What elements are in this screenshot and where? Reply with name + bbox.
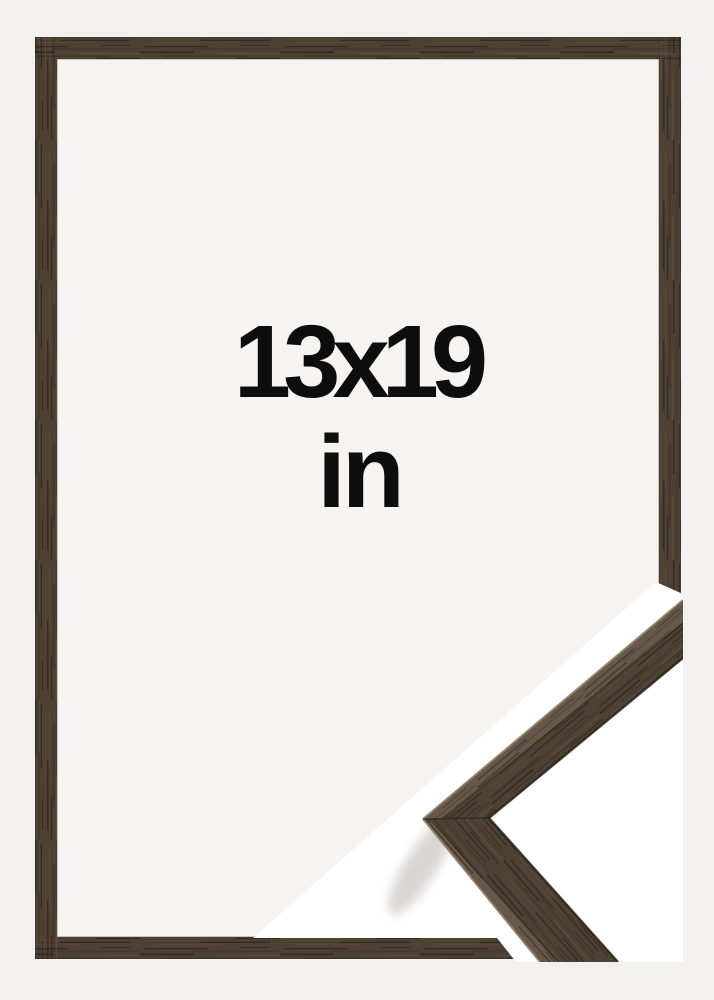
product-image-frame-13x19: 13x19 in bbox=[0, 0, 714, 1000]
frame-left-grain bbox=[35, 37, 57, 959]
frame-top-grain bbox=[35, 37, 681, 59]
size-label-dimensions: 13x19 bbox=[234, 304, 485, 419]
size-label-unit: in bbox=[317, 414, 401, 529]
mitre-joint-seam bbox=[423, 818, 489, 819]
